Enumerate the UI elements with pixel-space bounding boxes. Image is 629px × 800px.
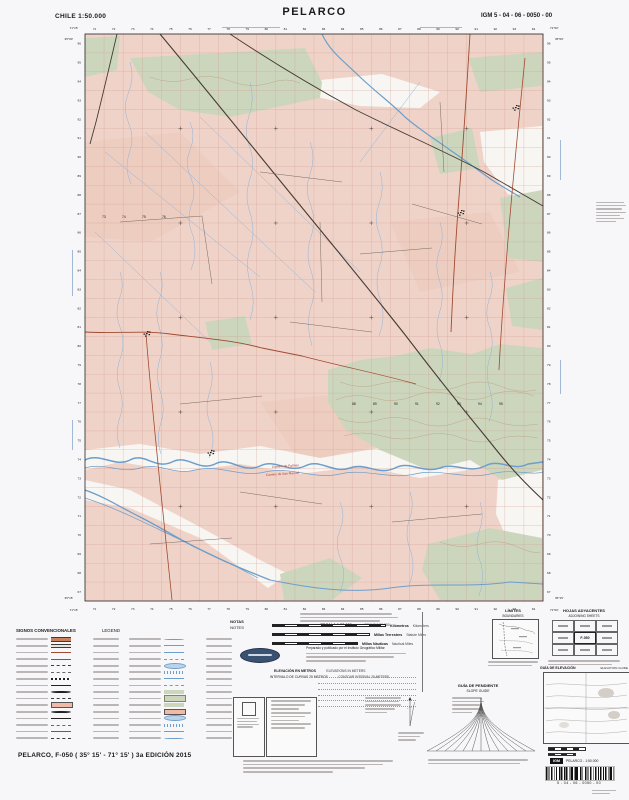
legend-item (129, 682, 232, 689)
legend-symbol-swatch (164, 659, 184, 660)
legend-symbol (51, 665, 71, 666)
elevation-guide-en: ELEVATION GUIDE (600, 666, 628, 670)
limits-sketch (493, 620, 538, 658)
adjoining-sheet-cell (552, 632, 574, 644)
adjoining-sheet-cell (574, 644, 596, 656)
text-line (592, 793, 610, 794)
legend-item (16, 735, 119, 742)
town-cluster (149, 334, 151, 335)
topographic-map: 888990919293949573747576Camino de Palmas… (60, 22, 565, 614)
tick-top: 73 (131, 27, 135, 31)
town-cluster (513, 108, 515, 109)
tick-right: 67 (547, 590, 551, 594)
sheet-code-placeholder (602, 625, 612, 627)
text-line (271, 720, 299, 722)
text-line (243, 767, 365, 769)
tick-right: 94 (547, 79, 551, 83)
tick-right: 78 (547, 382, 551, 386)
legend-label-es (129, 645, 161, 647)
legend-label-es (16, 724, 48, 726)
scale-bar-row: KilómetrosKilometers (272, 621, 462, 630)
tick-right: 87 (547, 212, 551, 216)
town-cluster (516, 105, 518, 106)
tick-right: 77 (547, 401, 551, 405)
tick-left: 74 (78, 457, 82, 461)
tick-bottom: 91 (474, 607, 478, 611)
adjoining-en: ADJOINING SHEETS (548, 614, 620, 620)
tick-left: 87 (78, 212, 82, 216)
legend-symbol-swatch (51, 672, 71, 673)
legend-label-es (129, 658, 161, 660)
town-cluster (144, 334, 146, 335)
diagram-square (242, 702, 256, 716)
legend-label-en (206, 711, 232, 713)
header-sheet-code: IGM 5 - 04 - 06 - 0050 - 00 (481, 13, 552, 19)
legend-symbol (164, 731, 184, 732)
tick-bottom: 79 (245, 607, 249, 611)
legend-label-en (206, 737, 232, 739)
text-line (488, 661, 538, 663)
legend-symbol-swatch (51, 711, 71, 713)
legend-label-en (93, 658, 119, 660)
legend-label-es (16, 698, 48, 700)
tick-top: 88 (417, 27, 421, 31)
text-line (237, 726, 253, 727)
legend-symbol (51, 652, 71, 654)
grid-number: 88 (352, 402, 356, 406)
legend-label-en (206, 645, 232, 647)
tick-left: 71 (78, 514, 82, 518)
legend-item (16, 669, 119, 676)
legend-block: SIGNOS CONVENCIONALES LEGEND (16, 628, 232, 742)
legend-label-en (93, 665, 119, 667)
tick-right: 79 (547, 363, 551, 367)
text-line (306, 656, 394, 658)
tick-top: 75 (169, 27, 173, 31)
tick-left: 88 (78, 193, 82, 197)
text-line (271, 727, 305, 729)
legend-label-es (16, 678, 48, 680)
tick-left: 95 (78, 61, 82, 65)
corner-coordinate: 71°15' (70, 26, 79, 30)
tick-bottom: 81 (284, 607, 288, 611)
margin-text-block (596, 200, 628, 224)
tick-right: 68 (547, 571, 551, 575)
vegetation-patch (205, 316, 252, 350)
text-line (596, 205, 626, 206)
tick-right: 72 (547, 495, 551, 499)
grid-number: 90 (394, 402, 398, 406)
text-line (548, 660, 620, 662)
tick-top: 91 (474, 27, 478, 31)
grid-number: 94 (478, 402, 482, 406)
leader-line (318, 685, 416, 690)
tick-right: 92 (547, 117, 551, 121)
legend-item (16, 709, 119, 716)
tick-bottom: 73 (131, 607, 135, 611)
tick-right: 71 (547, 514, 551, 518)
magnetic-north-line (410, 702, 415, 726)
legend-symbol (51, 672, 71, 673)
scale-bar-label-es: Millas Náuticas (362, 642, 388, 646)
tick-left: 89 (78, 174, 82, 178)
legend-item (129, 662, 232, 669)
legend-symbol (164, 685, 184, 686)
tick-right: 95 (547, 61, 551, 65)
legend-column (16, 636, 119, 742)
legend-symbol (51, 678, 71, 680)
legend-symbol (164, 652, 184, 653)
legend-item (129, 702, 232, 709)
notes-en: NOTES (222, 625, 252, 631)
legend-item (129, 643, 232, 650)
barcode (545, 766, 615, 781)
legend-columns (16, 636, 232, 742)
text-line (365, 701, 399, 703)
text-line (237, 721, 257, 722)
tick-left: 76 (78, 420, 82, 424)
slope-curve (463, 698, 481, 751)
legend-label-es (129, 665, 161, 667)
text-line (596, 221, 616, 222)
tick-top: 74 (150, 27, 154, 31)
tick-left: 79 (78, 363, 82, 367)
legend-symbol (51, 738, 71, 739)
tick-bottom: 80 (265, 607, 269, 611)
tick-top: 92 (494, 27, 498, 31)
legend-label-en (206, 671, 232, 673)
legend-symbol (164, 671, 184, 674)
divider-line (422, 612, 423, 692)
grid-number: 91 (415, 402, 419, 406)
grid-number: 93 (457, 402, 461, 406)
legend-label-es (16, 685, 48, 687)
tick-top: 87 (398, 27, 402, 31)
tick-right: 69 (547, 552, 551, 556)
legend-item (16, 676, 119, 683)
legend-item (16, 636, 119, 643)
preparation-line: Preparado y publicado por el Instituto G… (306, 647, 414, 651)
guide-stream (546, 731, 627, 733)
legend-symbol-swatch (51, 659, 71, 660)
scale-bar (272, 624, 386, 628)
slope-guide-en: SLOPE GUIDE (432, 689, 524, 695)
legend-item (129, 689, 232, 696)
legend-symbol-swatch (164, 695, 186, 702)
legend-symbol (164, 663, 184, 669)
text-line (592, 790, 616, 791)
legend-title-en: LEGEND (102, 628, 120, 633)
tick-left: 70 (78, 533, 82, 537)
legend-label-es (16, 731, 48, 733)
text-line (271, 708, 299, 710)
tick-top: 93 (513, 27, 517, 31)
legend-label-en (206, 698, 232, 700)
legend-label-es (16, 652, 48, 654)
legend-symbol (51, 644, 71, 648)
tick-bottom: 76 (188, 607, 192, 611)
legend-label-en (93, 704, 119, 706)
legend-symbol-swatch (164, 690, 184, 695)
slope-curve (427, 698, 481, 751)
legend-label-es (16, 671, 48, 673)
legend-label-es (129, 652, 161, 654)
legend-symbol-swatch (51, 691, 71, 693)
text-line (596, 218, 624, 219)
slope-guide-fan (425, 695, 537, 755)
legend-label-es (129, 638, 161, 640)
scale-bar (272, 642, 358, 646)
legend-item (129, 636, 232, 643)
legend-symbol (164, 659, 184, 660)
slope-guide-header: GUÍA DE PENDIENTE SLOPE GUIDE (432, 683, 524, 694)
adjoining-sheet-cell (596, 620, 618, 632)
legend-symbol (164, 715, 184, 721)
adjoining-sheet-cell (574, 620, 596, 632)
town-cluster (460, 212, 462, 213)
legend-symbol-swatch (51, 738, 71, 739)
corner-coordinate: 35°15' (65, 596, 74, 600)
legend-symbol-swatch (51, 637, 71, 642)
scale-bar-label-es: Kilómetros (390, 624, 409, 628)
guide-hill (559, 722, 569, 728)
tick-bottom: 71 (93, 607, 97, 611)
legend-label-en (206, 718, 232, 720)
limits-caption (488, 659, 540, 668)
legend-label-es (16, 711, 48, 713)
legend-label-en (93, 731, 119, 733)
legend-item (16, 695, 119, 702)
legend-label-en (206, 652, 232, 654)
legend-label-en (206, 724, 232, 726)
notes-header: NOTAS NOTES (222, 619, 252, 630)
legend-symbol-swatch (164, 678, 184, 679)
legend-symbol (51, 691, 71, 693)
tick-left: 77 (78, 401, 82, 405)
town-cluster (210, 452, 212, 453)
legend-label-en (93, 724, 119, 726)
tick-right: 76 (547, 420, 551, 424)
scale-bar (272, 633, 370, 637)
tick-bottom: 72 (112, 607, 116, 611)
tick-right: 90 (547, 155, 551, 159)
legend-label-en (93, 711, 119, 713)
tick-left: 94 (78, 79, 82, 83)
elevation-guide-box (543, 672, 629, 744)
legend-symbol (51, 725, 71, 726)
north-arrow (408, 697, 411, 700)
legend-symbol-swatch (164, 738, 184, 739)
grid-number: 74 (122, 215, 126, 219)
legend-label-es (129, 711, 161, 713)
text-line (237, 718, 259, 719)
legend-symbol (164, 738, 184, 739)
grid-number: 89 (373, 402, 377, 406)
town-cluster (515, 107, 517, 108)
legend-symbol (164, 709, 184, 716)
limits-header: LÍMITES BOUNDARIES (488, 608, 538, 619)
mini-scale-bar (548, 747, 586, 751)
legend-label-en (93, 645, 119, 647)
tick-bottom: 89 (436, 607, 440, 611)
legend-label-en (206, 665, 232, 667)
text-line (596, 215, 620, 216)
legend-label-en (206, 691, 232, 693)
tick-right: 89 (547, 174, 551, 178)
usage-note-box (266, 697, 317, 757)
tick-left: 96 (78, 42, 82, 46)
legend-item (16, 728, 119, 735)
tick-left: 86 (78, 231, 82, 235)
mini-scale-bar (548, 753, 576, 757)
legend-item (16, 649, 119, 656)
legend-label-en (206, 658, 232, 660)
legend-label-en (206, 731, 232, 733)
legend-item (129, 709, 232, 716)
legend-item (129, 728, 232, 735)
legend-label-en (206, 704, 232, 706)
legend-label-en (206, 678, 232, 680)
town-cluster (463, 213, 465, 214)
town-cluster (145, 336, 147, 337)
barcode-label: PELARCO - 1:50.000 (566, 759, 598, 763)
credits-text (243, 758, 403, 775)
tick-left: 93 (78, 98, 82, 102)
legend-symbol (51, 698, 71, 699)
legend-item (129, 669, 232, 676)
tick-right: 75 (547, 439, 551, 443)
legend-symbol (164, 645, 184, 646)
legend-item (129, 715, 232, 722)
tick-top: 83 (322, 27, 326, 31)
town-cluster (213, 451, 215, 452)
town-cluster (518, 108, 520, 109)
sheet-code-placeholder (580, 649, 590, 651)
tick-left: 80 (78, 344, 82, 348)
corner-coordinate: 35°00' (65, 37, 74, 41)
tick-right: 91 (547, 136, 551, 140)
legend-symbol (164, 639, 184, 640)
tick-left: 69 (78, 552, 82, 556)
legend-label-en (93, 678, 119, 680)
guide-stream (546, 683, 627, 685)
legend-symbol-swatch (164, 671, 184, 674)
legend-symbol (51, 637, 71, 642)
legend-symbol (51, 702, 71, 709)
sheet-code-placeholder (602, 649, 612, 651)
text-line (365, 712, 387, 714)
legend-label-es (129, 704, 161, 706)
tick-bottom: 77 (207, 607, 211, 611)
scale-bar-label-en: Nautical Miles (392, 642, 413, 646)
adjoining-sheet-cell (596, 632, 618, 644)
legend-symbol-swatch (164, 715, 186, 721)
legend-label-es (16, 704, 48, 706)
legend-label-es (129, 718, 161, 720)
legend-item (16, 702, 119, 709)
declination-text (398, 730, 426, 743)
town-cluster (458, 213, 460, 214)
slope-curve (445, 698, 481, 751)
map-sheet: CHILE 1:50.000 PELARCO IGM 5 - 04 - 06 -… (0, 0, 629, 800)
legend-label-es (129, 685, 161, 687)
elevation-guide-header: GUÍA DE ELEVACIÓN ELEVATION GUIDE (540, 666, 628, 670)
legend-label-en (93, 671, 119, 673)
grid-number: 75 (142, 215, 146, 219)
legend-label-en (93, 638, 119, 640)
legend-label-es (16, 691, 48, 693)
tick-right: 74 (547, 457, 551, 461)
tick-right: 80 (547, 344, 551, 348)
slope-curve (481, 698, 535, 751)
grid-number: 76 (162, 215, 166, 219)
slope-curve (481, 698, 499, 751)
tick-left: 92 (78, 117, 82, 121)
elevation-guide-es: GUÍA DE ELEVACIÓN (540, 666, 576, 670)
legend-title-es: SIGNOS CONVENCIONALES (16, 628, 76, 633)
sheet-code-placeholder (580, 625, 590, 627)
legend-item (129, 649, 232, 656)
legend-symbol (164, 678, 184, 679)
legend-label-en (93, 737, 119, 739)
tick-top: 89 (436, 27, 440, 31)
tick-left: 84 (78, 268, 82, 272)
limits-label (513, 647, 521, 648)
legend-label-es (129, 678, 161, 680)
tick-left: 91 (78, 136, 82, 140)
text-line (398, 739, 416, 741)
legend-item (16, 662, 119, 669)
town-cluster (459, 215, 461, 216)
legend-symbol (164, 690, 184, 695)
legend-symbol-swatch (51, 698, 71, 699)
legend-symbol-swatch (164, 685, 184, 686)
text-line (488, 665, 532, 667)
legend-symbol-swatch (164, 663, 186, 669)
legend-item (129, 735, 232, 742)
text-line (243, 771, 333, 773)
scale-bar-label-es: Millas Terrestres (374, 633, 402, 637)
tick-top: 84 (341, 27, 345, 31)
tick-right: 81 (547, 325, 551, 329)
limits-label (519, 636, 527, 637)
text-line (306, 653, 406, 655)
tick-top: 86 (379, 27, 383, 31)
legend-symbol-swatch (51, 678, 71, 680)
town-cluster (518, 106, 520, 107)
slope-guide-caption (428, 757, 533, 766)
legend-label-es (16, 638, 48, 640)
tick-right: 86 (547, 231, 551, 235)
boundary-line (499, 640, 533, 653)
legend-item (16, 715, 119, 722)
text-line (365, 704, 401, 706)
boundary-line (503, 622, 507, 656)
scale-bar-row: Millas TerrestresStatute Miles (272, 630, 462, 639)
tick-right: 93 (547, 98, 551, 102)
legend-label-es (16, 658, 48, 660)
text-line (428, 763, 520, 765)
sheet-code-placeholder (558, 637, 568, 639)
guide-stream (546, 719, 627, 721)
legend-label-en (93, 691, 119, 693)
text-line (271, 716, 305, 718)
sheet-code-placeholder (558, 649, 568, 651)
legend-item (16, 722, 119, 729)
text-line (243, 760, 393, 762)
legend-symbol-swatch (164, 652, 184, 653)
tick-top: 76 (188, 27, 192, 31)
